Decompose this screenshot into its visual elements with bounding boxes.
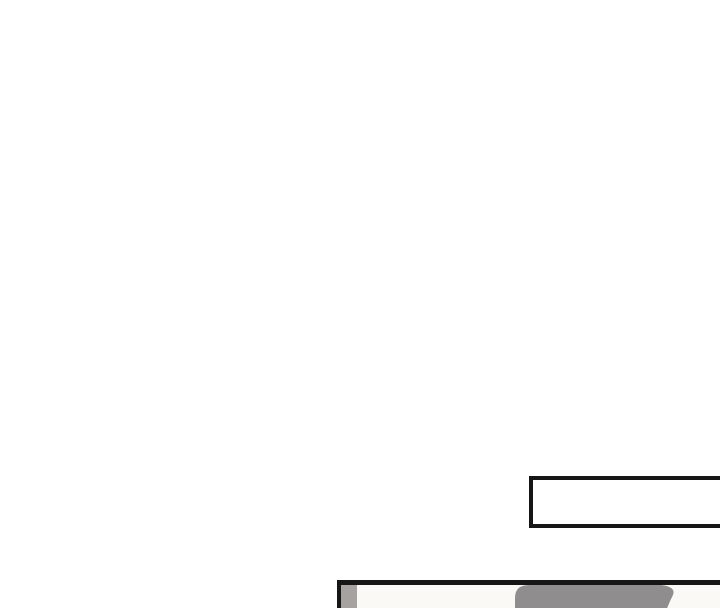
- comic-page: [0, 0, 720, 608]
- empty-caption-box: [529, 476, 720, 528]
- panel-figure-silhouette: [515, 585, 678, 608]
- bottom-panel: [337, 580, 720, 608]
- panel-wall-shade: [341, 585, 357, 608]
- caption-text: [533, 480, 720, 524]
- bottom-panel-artwork: [341, 585, 720, 608]
